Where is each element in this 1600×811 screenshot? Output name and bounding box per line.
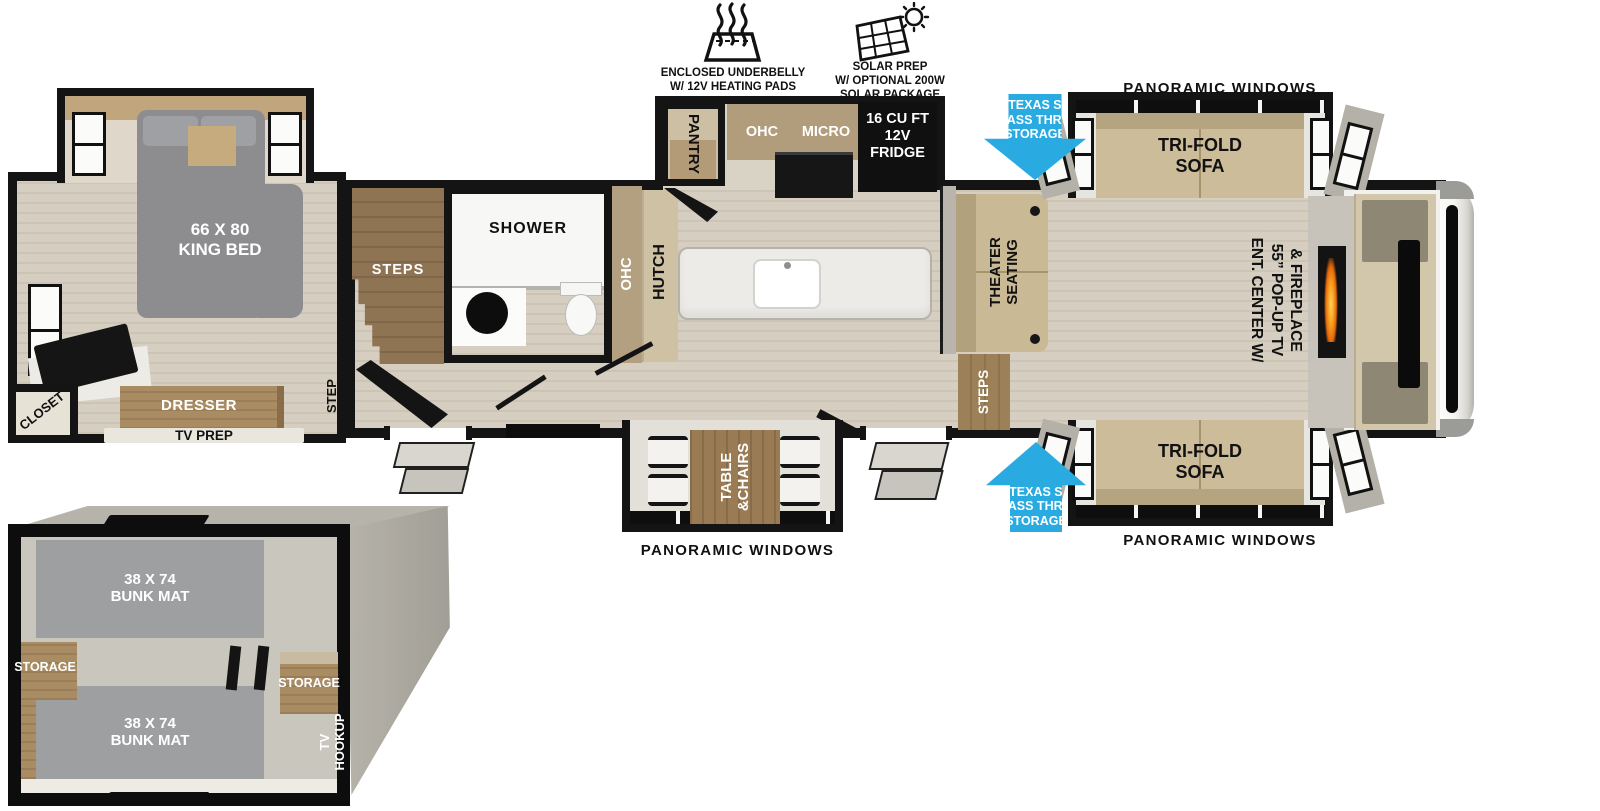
panoramic-window-glass [1076, 505, 1325, 518]
tri-fold-sofa-top-label: TRI-FOLDSOFA [1100, 134, 1300, 178]
door-jamb [860, 426, 866, 440]
entry-door-opening-1 [388, 428, 468, 440]
storage-right-label: STORAGE [276, 676, 342, 691]
cupholder-icon [1030, 206, 1040, 216]
tv-prep-label: TV PREP [104, 428, 304, 443]
ohc-label: OHC [618, 249, 636, 299]
tri-fold-sofa-bottom-label: TRI-FOLDSOFA [1100, 440, 1300, 484]
heating-pads-icon [696, 2, 766, 64]
entry-steps-icon [869, 442, 950, 470]
shower [452, 194, 604, 290]
bunk-mat-top-label: 38 X 74BUNK MAT [36, 570, 264, 606]
bath-sink-icon [466, 292, 508, 334]
bedroom-step-label: STEP [325, 373, 339, 419]
sofa-back-cushion [1096, 113, 1304, 129]
underbelly-caption: ENCLOSED UNDERBELLY W/ 12V HEATING PADS [638, 66, 828, 94]
dinette-chair [780, 436, 820, 468]
theater-seat-back [956, 194, 976, 352]
dinette-chair [648, 474, 688, 506]
solar-caption: SOLAR PREP W/ OPTIONAL 200W SOLAR PACKAG… [828, 60, 952, 102]
range-icon [775, 152, 853, 198]
pass-thru-wall [940, 186, 956, 354]
sofa-back-cushion [1096, 489, 1304, 505]
solar-prep-icon [852, 2, 930, 62]
stairs-label: STEPS [354, 262, 442, 278]
storage-compartment-door [506, 424, 600, 438]
theater-seating-label: THEATERSEATING [986, 197, 1022, 347]
entry-steps-icon [393, 442, 475, 468]
pantry-label: PANTRY [684, 108, 702, 180]
entry-steps-icon [874, 470, 943, 500]
bedroom-slide-window-left-icon [72, 112, 106, 176]
dinette-label: TABLE&CHAIRS [717, 422, 753, 532]
panoramic-windows-bottom-center-label: PANORAMIC WINDOWS [580, 542, 895, 559]
cupholder-icon [1030, 334, 1040, 344]
kitchen-ohc-label: OHC [727, 124, 797, 140]
bunk-loft-side [345, 506, 452, 795]
floorplan: 66 X 80KING BED CLOSET DRESSER TV PREP S… [0, 0, 1600, 811]
cap-window-icon [1446, 205, 1458, 413]
door-jamb [384, 426, 390, 440]
panoramic-window-glass [1076, 100, 1325, 113]
faucet-icon [784, 262, 791, 269]
bedroom-slide-window-right-icon [268, 112, 302, 176]
loft-handle-icon [102, 792, 209, 804]
dinette-chair [648, 436, 688, 468]
entry-steps-icon [399, 468, 469, 494]
king-bed-label: 66 X 80KING BED [140, 220, 300, 260]
blanket [188, 126, 236, 166]
panoramic-windows-top-label: PANORAMIC WINDOWS [1080, 80, 1360, 97]
fridge-label: 16 CU FT 12V FRIDGE [858, 108, 937, 164]
door-jamb [946, 426, 952, 440]
dresser-label: DRESSER [120, 396, 278, 416]
toilet-icon [565, 294, 597, 336]
door-jamb [466, 426, 472, 440]
flame-icon [1324, 258, 1338, 342]
left-bed-base [21, 700, 36, 779]
storage-left-label: STORAGE [8, 660, 82, 675]
shower-label: SHOWER [452, 220, 604, 238]
panoramic-windows-bottom-right-label: PANORAMIC WINDOWS [1080, 532, 1360, 549]
cap-trim-bottom [1436, 419, 1474, 437]
bunk-room-front-band [21, 779, 337, 793]
bunk-storage-right-top [280, 652, 338, 664]
entry-door-opening-2 [864, 428, 948, 440]
popup-tv-icon [1398, 240, 1420, 388]
tv-hookup-label: TVHOOKUP [316, 696, 348, 788]
cap-trim-top [1436, 181, 1474, 199]
living-steps-label: STEPS [976, 360, 992, 424]
bunk-mat-bottom-label: 38 X 74BUNK MAT [36, 714, 264, 750]
ent-center-label: & FIREPLACE 55” POP-UP TV ENT. CENTER W/ [1246, 195, 1306, 405]
micro-label: MICRO [794, 124, 858, 140]
hutch-label: HUTCH [650, 237, 670, 307]
dinette-chair [780, 474, 820, 506]
